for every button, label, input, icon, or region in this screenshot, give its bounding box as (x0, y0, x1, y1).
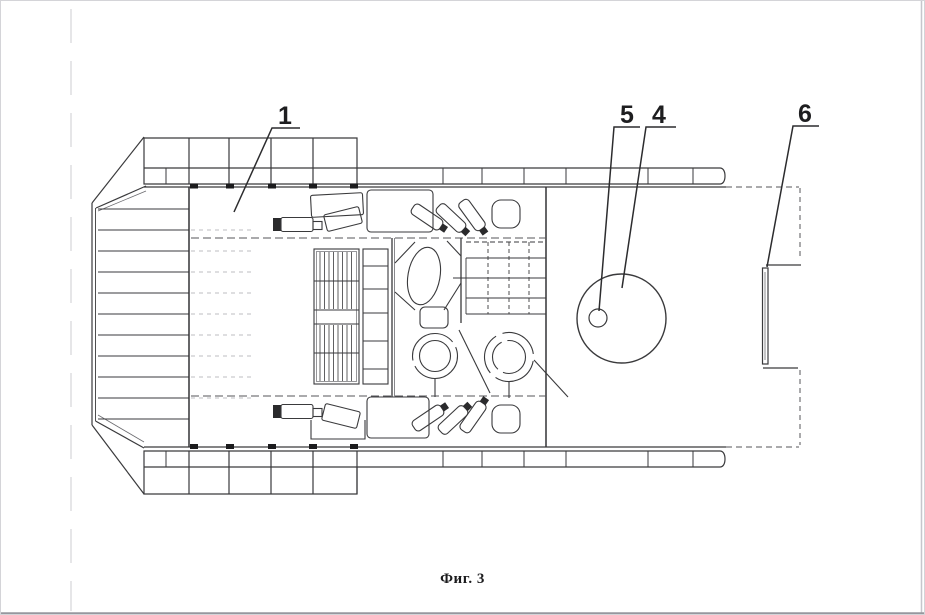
callout-5-label: 5 (620, 101, 634, 129)
strip-dividers-tall-top (189, 138, 357, 184)
dinette-berth-grid (453, 242, 546, 314)
dive-cylinder-body (457, 198, 487, 233)
dive-cylinder-valve (479, 227, 488, 236)
cylinder-body (281, 405, 313, 419)
swivel-seat-left (413, 334, 458, 398)
mooring-cleat (350, 444, 358, 449)
swivel-seat-inner-ring (493, 341, 526, 374)
strip-outline-bottom (144, 451, 725, 494)
strip-dividers-tall-bottom (189, 451, 357, 494)
swivel-seat-inner-ring (420, 341, 451, 372)
dive-cylinder (458, 395, 491, 435)
bow-ramp-steps (98, 209, 189, 419)
small-seat-box (420, 307, 448, 328)
gas-cylinder-horizontal-top (273, 218, 322, 232)
wc-compartment (395, 241, 461, 310)
engine-grid-frame-inner (317, 252, 357, 382)
callout-4-label: 4 (652, 101, 666, 129)
midship-equipment (314, 238, 568, 398)
furniture-bottom-band (273, 395, 520, 439)
vessel-plan-drawing: 1 5 4 6 (1, 1, 925, 615)
dive-cylinder-body (458, 400, 487, 435)
mooring-cleat (309, 444, 317, 449)
dive-cylinder-body (411, 404, 446, 433)
seat-bottom-a (321, 403, 360, 428)
dive-cylinder-valve (461, 227, 470, 236)
toilet-oval (403, 245, 445, 308)
cylinder-cap (273, 218, 281, 231)
mooring-cleat (350, 184, 358, 189)
locker-column-frame (363, 249, 388, 384)
bow-slant-bottom-outer (92, 425, 144, 494)
stool-bottom (492, 405, 520, 433)
figure-caption: Фиг. 3 (1, 571, 924, 588)
callout-6-label: 6 (798, 100, 812, 128)
callout-4: 4 (622, 101, 676, 288)
mooring-cleat (309, 184, 317, 189)
dive-cylinder (411, 400, 451, 432)
dive-cylinder-body (410, 203, 445, 232)
bow-section (92, 137, 255, 494)
dive-cylinder-valve (439, 224, 448, 233)
dinette-rows (453, 258, 546, 314)
callouts: 1 5 4 6 (234, 100, 819, 311)
callout-1-leader (234, 128, 300, 212)
dive-cylinder-valve (480, 396, 489, 405)
mooring-cleat (190, 444, 198, 449)
mooring-cleat (268, 444, 276, 449)
callout-1-label: 1 (278, 102, 292, 130)
swivel-seat-outer-ring (476, 324, 541, 389)
side-deck-strip-bottom (144, 451, 725, 494)
dive-cylinders-bottom (411, 395, 492, 436)
dive-cylinder (434, 202, 471, 238)
callout-4-leader (622, 127, 676, 288)
seat-top-b (323, 206, 362, 231)
table-bottom-band (367, 397, 429, 438)
engine-grid-slats (320, 252, 352, 381)
callout-5-leader (599, 127, 640, 311)
dive-cylinder-valve (440, 402, 449, 411)
wc-corner-partitions (395, 241, 461, 310)
gas-cylinder-horizontal-bottom (273, 405, 322, 419)
engine-hatch-grid (314, 249, 359, 384)
bow-slant-bottom-inner (96, 421, 145, 448)
stern-section (763, 188, 802, 445)
cylinder-cap (273, 405, 281, 418)
table-top-band (367, 190, 433, 232)
locker-column-dividers (363, 266, 388, 369)
engine-grid-frame (314, 249, 359, 384)
seat-locker-column (363, 249, 388, 384)
mooring-cleat (226, 444, 234, 449)
tank-fitting-circle (589, 309, 607, 327)
bow-slant-top-inner2 (98, 191, 146, 211)
bow-slant-top-outer (92, 137, 144, 203)
callout-6: 6 (767, 100, 819, 267)
patent-figure-page: 1 5 4 6 Фиг. 3 (0, 0, 925, 615)
cylinder-body (281, 218, 313, 232)
furniture-top-band (273, 190, 520, 238)
mooring-cleat (190, 184, 198, 189)
engine-grid-crossbars (314, 281, 359, 353)
strip-dividers-thin-top (166, 168, 693, 184)
mooring-cleat (268, 184, 276, 189)
seat-top-a (310, 193, 363, 218)
swivel-seat-right (476, 324, 541, 398)
bow-steps-dashed-extension (191, 230, 255, 398)
strip-dividers-thin-bottom (166, 451, 693, 467)
callout-6-leader (767, 126, 819, 267)
seat-bottom-b (311, 420, 365, 439)
stool-top (492, 200, 520, 228)
door-swing-line (534, 360, 568, 397)
mooring-cleat (226, 184, 234, 189)
callout-1: 1 (234, 102, 300, 212)
scan-artifacts (1, 1, 925, 615)
cylinder-neck (313, 409, 322, 417)
cylinder-neck (313, 222, 322, 230)
